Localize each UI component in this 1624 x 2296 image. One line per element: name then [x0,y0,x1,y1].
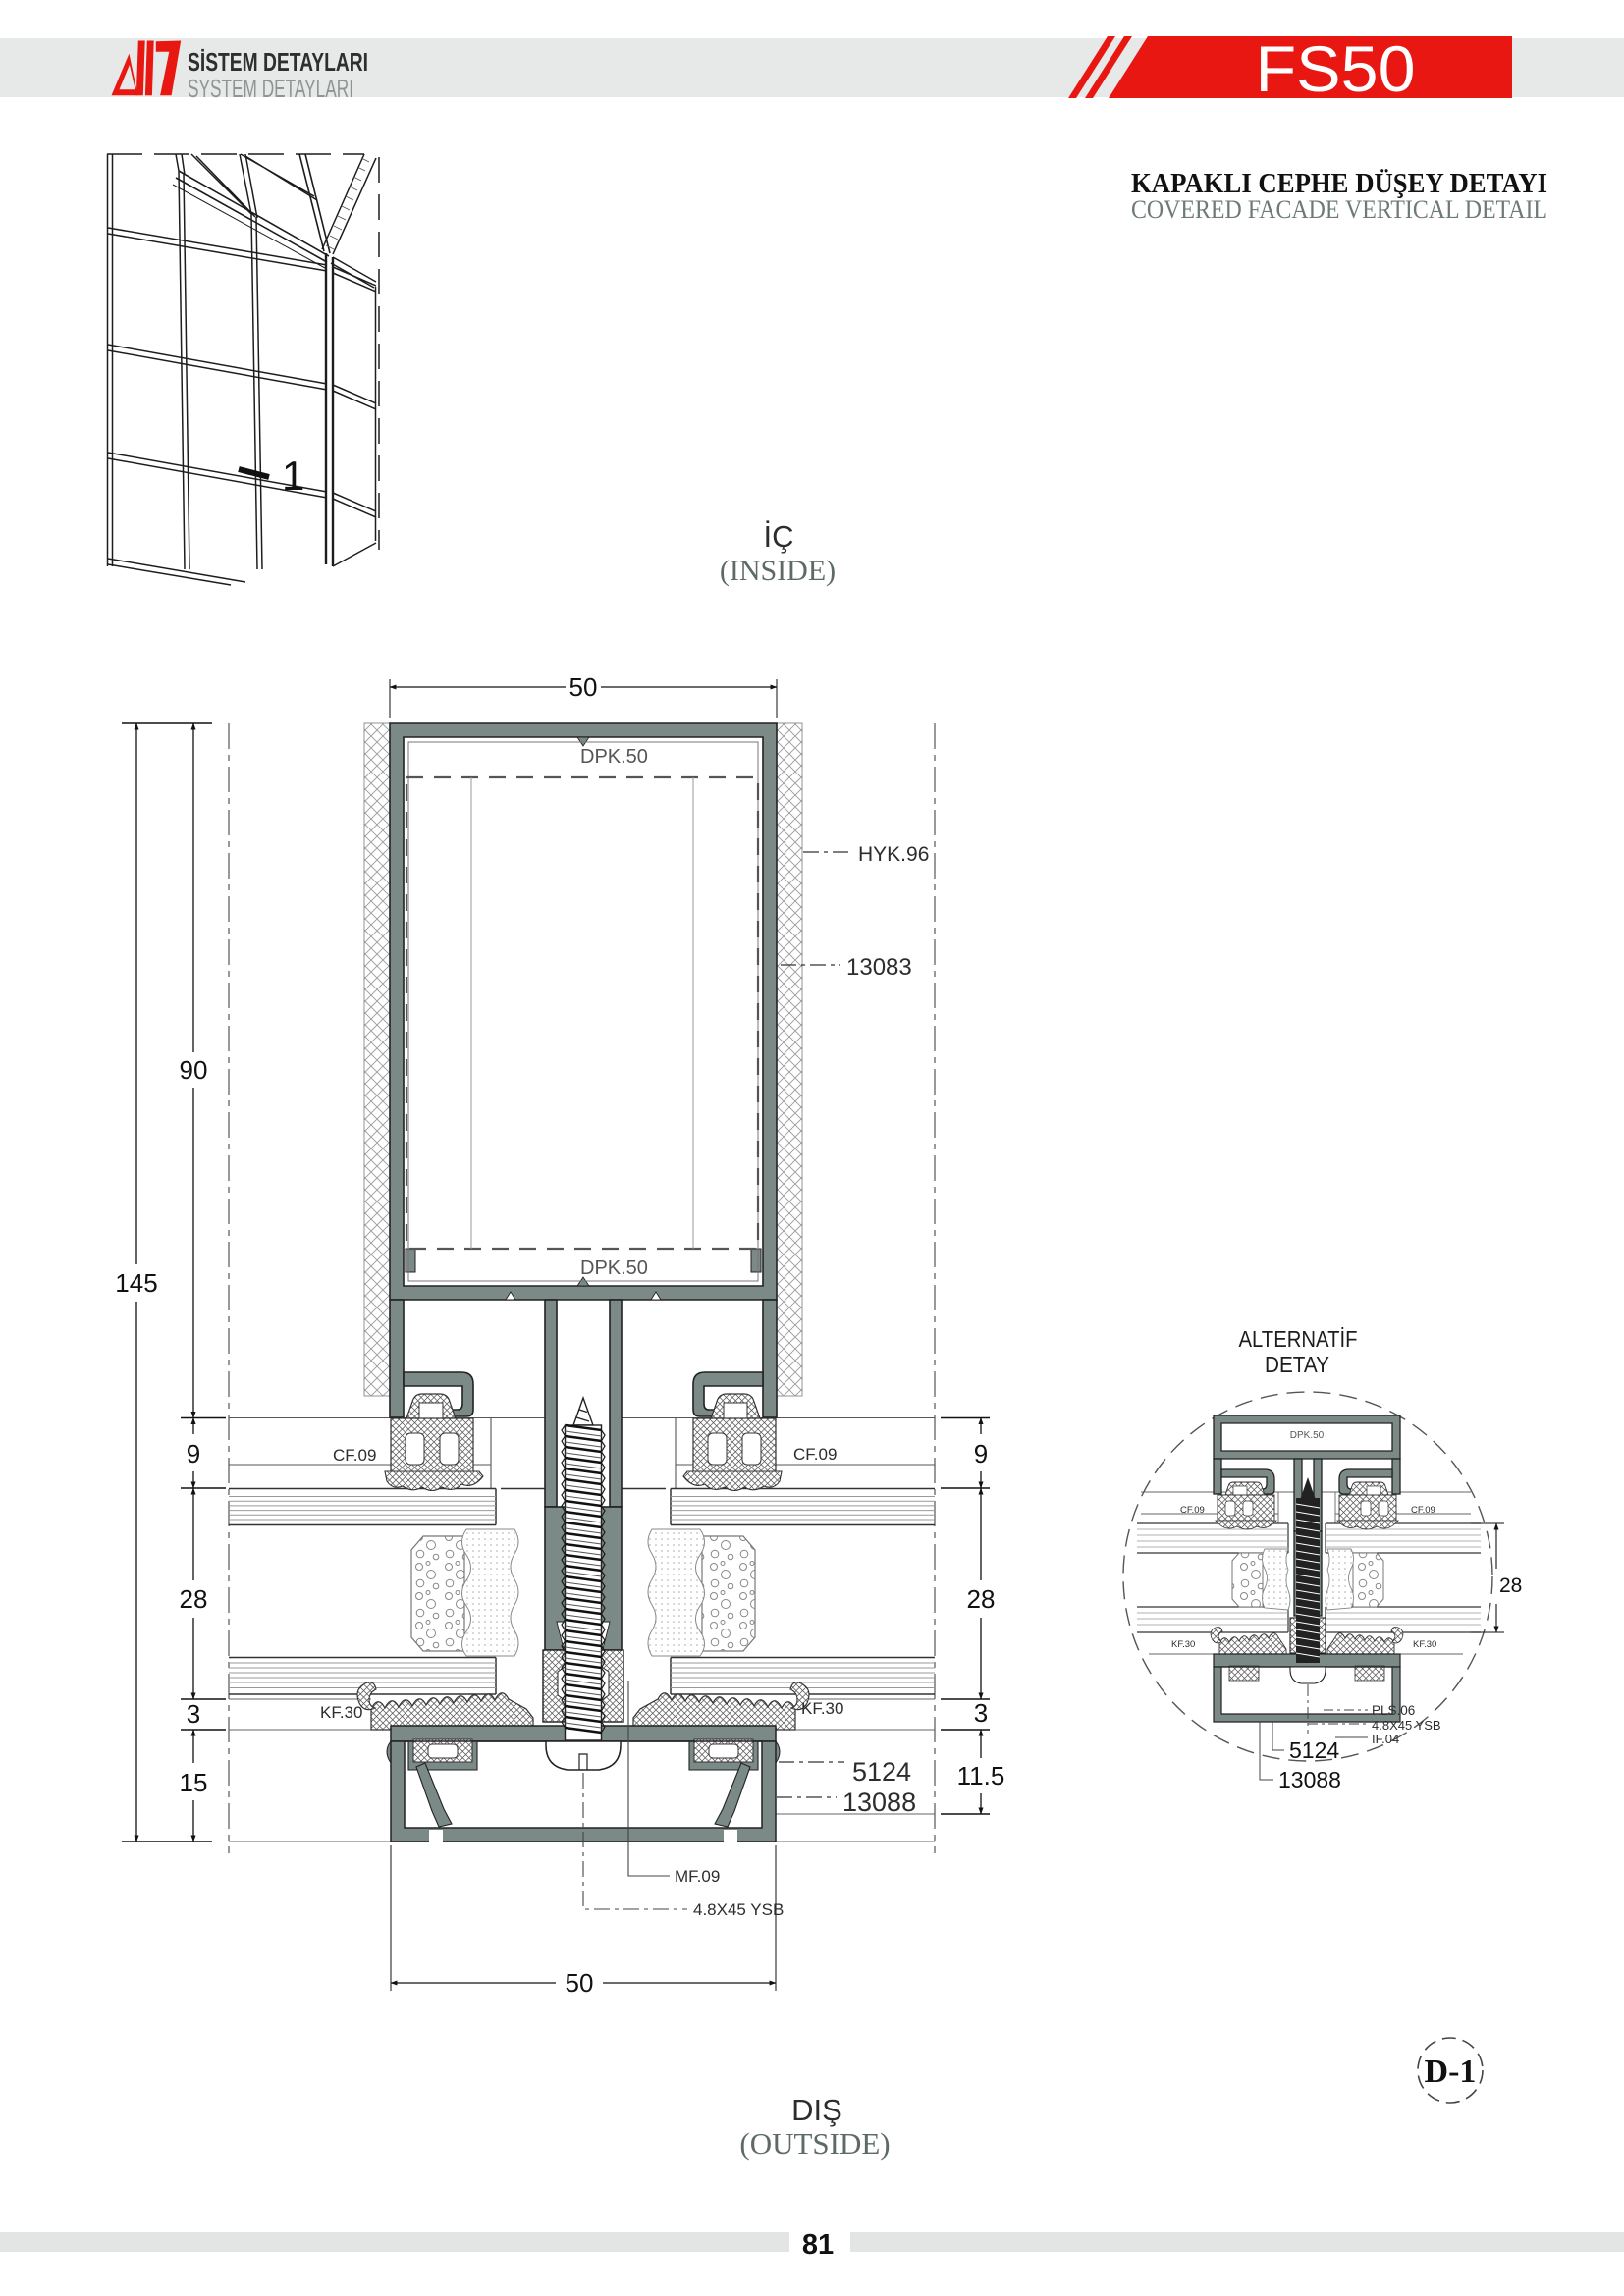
svg-text:DETAY: DETAY [1265,1352,1329,1377]
svg-text:5124: 5124 [852,1757,911,1787]
svg-text:4.8X45 YSB: 4.8X45 YSB [693,1900,784,1919]
svg-text:3: 3 [974,1698,988,1728]
svg-text:13088: 13088 [842,1788,916,1817]
svg-text:50: 50 [566,1968,594,1998]
svg-text:PLS.06: PLS.06 [1372,1703,1415,1718]
svg-text:9: 9 [187,1439,200,1468]
svg-text:28: 28 [1499,1575,1522,1597]
svg-text:CF.09: CF.09 [1411,1505,1435,1516]
svg-text:MF.09: MF.09 [675,1867,720,1886]
svg-text:D-1: D-1 [1425,2054,1477,2090]
svg-text:CF.09: CF.09 [793,1445,837,1464]
svg-text:5124: 5124 [1289,1737,1339,1763]
svg-text:13083: 13083 [846,954,912,981]
svg-text:28: 28 [180,1584,208,1614]
svg-text:81: 81 [802,2229,834,2261]
svg-text:1: 1 [282,453,304,499]
svg-text:28: 28 [967,1584,996,1614]
svg-text:DPK.50: DPK.50 [1290,1430,1325,1441]
svg-text:KF.30: KF.30 [1413,1639,1436,1650]
svg-text:HYK.96: HYK.96 [858,843,929,866]
svg-text:KF.30: KF.30 [1171,1639,1195,1650]
svg-text:11.5: 11.5 [957,1761,1005,1790]
svg-text:İÇ: İÇ [764,519,794,554]
svg-text:KF.30: KF.30 [320,1703,362,1722]
svg-text:KF.30: KF.30 [801,1699,843,1718]
svg-text:3: 3 [187,1699,200,1729]
svg-text:9: 9 [974,1439,988,1468]
svg-text:13088: 13088 [1278,1767,1341,1792]
svg-text:IF.04: IF.04 [1372,1732,1399,1746]
svg-text:15: 15 [180,1768,208,1797]
svg-text:145: 145 [115,1268,157,1298]
svg-text:50: 50 [569,672,598,702]
svg-text:SYSTEM DETAYLARI: SYSTEM DETAYLARI [188,74,353,103]
svg-text:SİSTEM DETAYLARI: SİSTEM DETAYLARI [188,47,368,77]
svg-text:4.8X45 YSB: 4.8X45 YSB [1372,1718,1441,1733]
svg-text:DIŞ: DIŞ [791,2093,842,2127]
svg-text:90: 90 [180,1055,208,1085]
svg-text:DPK.50: DPK.50 [580,746,648,768]
svg-text:DPK.50: DPK.50 [580,1257,648,1279]
svg-text:COVERED FACADE VERTICAL DETAIL: COVERED FACADE VERTICAL DETAIL [1131,195,1547,224]
svg-text:CF.09: CF.09 [1180,1505,1205,1516]
svg-text:ALTERNATİF: ALTERNATİF [1239,1326,1358,1352]
svg-text:(OUTSIDE): (OUTSIDE) [739,2126,890,2161]
svg-text:(INSIDE): (INSIDE) [720,555,836,587]
svg-text:FS50: FS50 [1256,32,1416,105]
svg-text:CF.09: CF.09 [333,1446,376,1465]
